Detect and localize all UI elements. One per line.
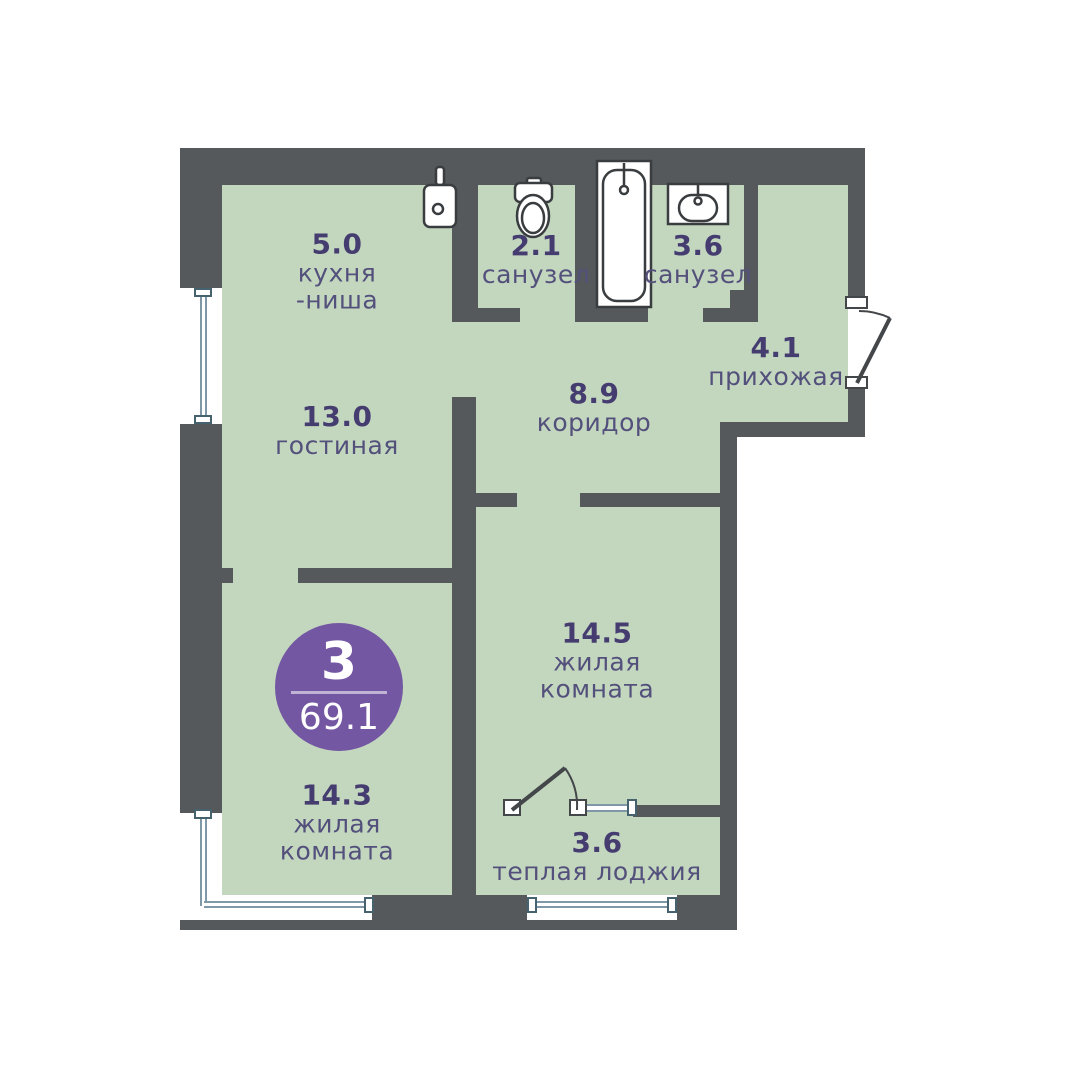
wall-living-bedroom-stub — [222, 568, 233, 583]
window-loggia-outer-edge — [527, 920, 677, 930]
window-left-cap-top — [194, 288, 212, 297]
loggia-door-post-right — [569, 799, 587, 816]
room-name: прихожая — [708, 363, 843, 390]
room-name: санузел — [644, 261, 752, 288]
wall-central — [452, 397, 476, 895]
room-label-bath1: 2.1 санузел — [482, 230, 590, 288]
window-corner-glass-v — [200, 818, 207, 906]
room-area-value: 14.5 — [540, 618, 654, 649]
window-loggia-glass — [537, 901, 667, 908]
room-label-corridor: 8.9 коридор — [537, 378, 651, 436]
window-corner-outer-edge — [180, 920, 372, 930]
room-area-value: 2.1 — [482, 230, 590, 261]
room-label-bath2: 3.6 санузел — [644, 230, 752, 288]
room-label-bedroom1: 14.5 жилая комната — [540, 618, 654, 703]
badge-divider — [291, 691, 387, 694]
window-loggia-cap-right — [667, 897, 677, 913]
rooms-count: 3 — [321, 636, 357, 688]
room-label-loggia: 3.6 теплая лоджия — [492, 827, 701, 885]
wall-corridor-bottom-left — [452, 493, 517, 507]
room-label-living: 13.0 гостиная — [275, 401, 399, 459]
room-area-value: 4.1 — [708, 332, 843, 363]
room-name: -ниша — [296, 287, 378, 314]
total-area: 69.1 — [299, 698, 379, 738]
entry-door-post-top — [845, 296, 868, 309]
room-area-value: 3.6 — [644, 230, 752, 261]
wall-loggia-top — [633, 805, 720, 817]
window-corner-cap-right — [364, 897, 374, 913]
wall-kitchen-bath — [452, 148, 478, 322]
room-name: комната — [280, 838, 394, 865]
wall-right-top — [848, 148, 865, 437]
window-loggia-cap-left — [527, 897, 537, 913]
entry-door-opening — [848, 300, 865, 388]
wall-right-low — [720, 437, 737, 930]
room-name: гостиная — [275, 432, 399, 459]
window-bedroom-loggia-cap — [627, 799, 637, 816]
wall-bath1-bottom-left — [478, 308, 520, 322]
room-name: жилая — [540, 649, 654, 676]
wall-living-bedroom — [298, 568, 455, 583]
room-name: кухня — [296, 260, 378, 287]
room-name: жилая — [280, 811, 394, 838]
room-name: комната — [540, 676, 654, 703]
loggia-door-post-left — [503, 799, 521, 816]
window-bedroom-loggia-glass — [587, 804, 629, 812]
entry-door-post-bottom — [845, 376, 868, 389]
wall-top — [180, 148, 865, 185]
room-area-value: 8.9 — [537, 378, 651, 409]
room-name: коридор — [537, 409, 651, 436]
wall-hall-bottom — [720, 422, 865, 437]
apartment-summary-badge: 3 69.1 — [275, 623, 403, 751]
room-label-bedroom2: 14.3 жилая комната — [280, 780, 394, 865]
room-name: теплая лоджия — [492, 858, 701, 885]
room-area-value: 3.6 — [492, 827, 701, 858]
window-left-glass — [200, 297, 207, 415]
room-area-value: 5.0 — [296, 229, 378, 260]
wall-bath2-bottom-right — [703, 308, 730, 322]
room-label-kitchen: 5.0 кухня -ниша — [296, 229, 378, 314]
room-name: санузел — [482, 261, 590, 288]
room-area-value: 13.0 — [275, 401, 399, 432]
wall-corridor-bottom-right — [580, 493, 720, 507]
room-label-hallway: 4.1 прихожая — [708, 332, 843, 390]
room-area-value: 14.3 — [280, 780, 394, 811]
wall-bath-bottom-mid — [575, 308, 648, 322]
window-left-cap-bottom — [194, 415, 212, 424]
window-corner-cap-top — [194, 809, 212, 819]
floor-plan: 5.0 кухня -ниша 13.0 гостиная 2.1 санузе… — [0, 0, 1080, 1080]
window-corner-glass-h — [204, 901, 368, 908]
